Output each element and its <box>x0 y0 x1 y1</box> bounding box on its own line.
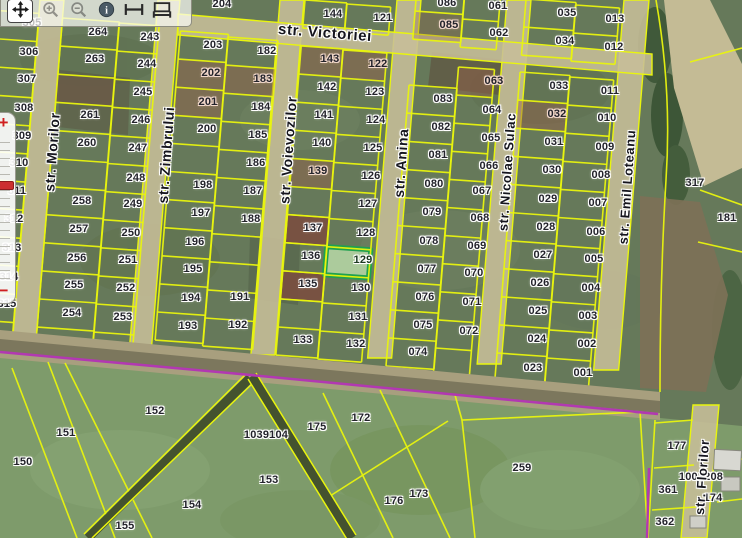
parcel-label-012[interactable]: 012 <box>605 41 624 53</box>
parcel-label-247[interactable]: 247 <box>129 142 148 154</box>
parcel-label-139[interactable]: 139 <box>309 165 328 177</box>
parcel-label-248[interactable]: 248 <box>127 172 146 184</box>
parcel-label-153[interactable]: 153 <box>260 474 279 486</box>
parcel-label-028[interactable]: 028 <box>537 221 556 233</box>
parcel-label-076[interactable]: 076 <box>416 291 435 303</box>
parcel-label-191[interactable]: 191 <box>231 291 250 303</box>
zoom-out-icon <box>70 1 87 21</box>
parcel-label-154[interactable]: 154 <box>183 499 202 511</box>
parcel-label-137[interactable]: 137 <box>304 222 323 234</box>
parcel-label-085[interactable]: 085 <box>440 19 459 31</box>
parcel-label-080[interactable]: 080 <box>425 178 444 190</box>
parcel-label-124[interactable]: 124 <box>367 114 386 126</box>
parcel-label-002[interactable]: 002 <box>578 338 597 350</box>
parcel-label-184[interactable]: 184 <box>252 101 271 113</box>
measure-distance-icon <box>124 1 144 21</box>
parcel-label-152[interactable]: 152 <box>146 405 165 417</box>
parcel-label-121[interactable]: 121 <box>374 12 393 24</box>
parcel-label-261[interactable]: 261 <box>81 109 100 121</box>
parcel-label-203[interactable]: 203 <box>204 39 223 51</box>
parcel-label-127[interactable]: 127 <box>359 198 378 210</box>
parcel-label-005[interactable]: 005 <box>585 253 604 265</box>
parcel-label-082[interactable]: 082 <box>432 121 451 133</box>
parcel-label-362[interactable]: 362 <box>656 516 675 528</box>
parcel-label-244[interactable]: 244 <box>138 58 157 70</box>
parcel-label-306[interactable]: 306 <box>20 46 39 58</box>
parcel-label-081[interactable]: 081 <box>429 149 448 161</box>
parcel-label-075[interactable]: 075 <box>414 319 433 331</box>
map-labels-layer: 3053063073083093103113123133143152642632… <box>0 0 742 538</box>
svg-text:i: i <box>105 5 108 16</box>
parcel-label-135[interactable]: 135 <box>299 278 318 290</box>
parcel-label-033[interactable]: 033 <box>550 80 569 92</box>
parcel-label-061[interactable]: 061 <box>489 0 508 12</box>
parcel-label-259[interactable]: 259 <box>513 462 532 474</box>
parcel-label-077[interactable]: 077 <box>418 263 437 275</box>
parcel-label-010[interactable]: 010 <box>598 112 617 124</box>
parcel-label-181[interactable]: 181 <box>718 212 737 224</box>
zoom-slider-track[interactable] <box>0 135 10 281</box>
parcel-label-175[interactable]: 175 <box>308 421 327 433</box>
parcel-label-032[interactable]: 032 <box>548 108 567 120</box>
parcel-label-129[interactable]: 129 <box>354 254 373 266</box>
parcel-label-253[interactable]: 253 <box>114 311 133 323</box>
parcel-label-197[interactable]: 197 <box>192 207 211 219</box>
parcel-label-079[interactable]: 079 <box>423 206 442 218</box>
parcel-label-186[interactable]: 186 <box>247 157 266 169</box>
parcel-label-027[interactable]: 027 <box>534 249 553 261</box>
parcel-label-249[interactable]: 249 <box>124 198 143 210</box>
parcel-label-176[interactable]: 176 <box>385 495 404 507</box>
parcel-label-083[interactable]: 083 <box>434 93 453 105</box>
identify-info-tool-button[interactable]: i <box>95 0 117 22</box>
parcel-label-009[interactable]: 009 <box>596 141 615 153</box>
parcel-label-204[interactable]: 204 <box>213 0 232 10</box>
parcel-label-200[interactable]: 200 <box>198 123 217 135</box>
parcel-label-140[interactable]: 140 <box>313 137 332 149</box>
parcel-label-068[interactable]: 068 <box>471 212 490 224</box>
parcel-label-307[interactable]: 307 <box>18 73 37 85</box>
parcel-label-128[interactable]: 128 <box>357 227 376 239</box>
street-label: str. Nicolae Sulac <box>495 112 518 231</box>
parcel-label-193[interactable]: 193 <box>179 320 198 332</box>
parcel-label-008[interactable]: 008 <box>592 169 611 181</box>
parcel-label-255[interactable]: 255 <box>65 279 84 291</box>
parcel-label-029[interactable]: 029 <box>539 193 558 205</box>
parcel-label-196[interactable]: 196 <box>186 236 205 248</box>
parcel-label-007[interactable]: 007 <box>589 197 608 209</box>
parcel-label-177[interactable]: 177 <box>668 440 687 452</box>
parcel-label-257[interactable]: 257 <box>70 223 89 235</box>
measure-distance-tool-button[interactable] <box>123 0 145 22</box>
measure-area-icon <box>152 1 172 21</box>
parcel-label-192[interactable]: 192 <box>229 319 248 331</box>
parcel-label-003[interactable]: 003 <box>579 310 598 322</box>
parcel-label-013[interactable]: 013 <box>606 13 625 25</box>
zoom-slider[interactable]: + − <box>0 112 16 304</box>
parcel-label-078[interactable]: 078 <box>420 235 439 247</box>
parcel-label-125[interactable]: 125 <box>364 142 383 154</box>
parcel-label-185[interactable]: 185 <box>249 129 268 141</box>
street-label: str. Anina <box>391 128 412 198</box>
parcel-label-011[interactable]: 011 <box>601 85 619 97</box>
parcel-label-142[interactable]: 142 <box>318 81 337 93</box>
parcel-label-067[interactable]: 067 <box>473 185 492 197</box>
parcel-label-150[interactable]: 150 <box>14 456 33 468</box>
zoom-in-button[interactable]: + <box>0 113 8 135</box>
parcel-label-130[interactable]: 130 <box>352 282 371 294</box>
parcel-label-144[interactable]: 144 <box>324 8 343 20</box>
parcel-label-030[interactable]: 030 <box>543 164 562 176</box>
parcel-label-194[interactable]: 194 <box>182 292 201 304</box>
parcel-label-361[interactable]: 361 <box>659 484 678 496</box>
parcel-label-034[interactable]: 034 <box>556 35 575 47</box>
parcel-label-062[interactable]: 062 <box>490 27 509 39</box>
parcel-label-256[interactable]: 256 <box>68 252 87 264</box>
parcel-label-250[interactable]: 250 <box>122 227 141 239</box>
parcel-label-071[interactable]: 071 <box>463 296 482 308</box>
parcel-label-072[interactable]: 072 <box>460 325 479 337</box>
street-label: str. Victoriei <box>277 21 372 45</box>
parcel-label-126[interactable]: 126 <box>362 170 381 182</box>
parcel-label-001[interactable]: 001 <box>574 367 593 379</box>
parcel-label-069[interactable]: 069 <box>468 240 487 252</box>
parcel-label-004[interactable]: 004 <box>582 282 601 294</box>
parcel-label-131[interactable]: 131 <box>349 311 368 323</box>
parcel-label-254[interactable]: 254 <box>63 307 82 319</box>
parcel-label-263[interactable]: 263 <box>86 53 105 65</box>
map-viewport[interactable]: 3053063073083093103113123133143152642632… <box>0 0 742 538</box>
parcel-label-198[interactable]: 198 <box>194 179 213 191</box>
identify-icon: i <box>98 1 115 21</box>
pan-icon <box>12 1 29 21</box>
zoom-slider-handle[interactable] <box>0 181 14 190</box>
parcel-label-260[interactable]: 260 <box>78 137 97 149</box>
parcel-label-133[interactable]: 133 <box>294 334 313 346</box>
zoom-out-tool-button[interactable] <box>67 0 89 22</box>
parcel-label-143[interactable]: 143 <box>321 53 340 65</box>
parcel-label-243[interactable]: 243 <box>141 31 160 43</box>
parcel-label-123[interactable]: 123 <box>366 86 385 98</box>
parcel-label-258[interactable]: 258 <box>73 195 92 207</box>
parcel-label-251[interactable]: 251 <box>119 254 138 266</box>
parcel-label-182[interactable]: 182 <box>258 45 277 57</box>
parcel-label-173[interactable]: 173 <box>410 488 429 500</box>
zoom-in-tool-button[interactable] <box>39 0 61 22</box>
parcel-label-151[interactable]: 151 <box>57 427 76 439</box>
parcel-label-245[interactable]: 245 <box>134 86 153 98</box>
parcel-label-308[interactable]: 308 <box>15 102 34 114</box>
parcel-label-086[interactable]: 086 <box>438 0 457 9</box>
parcel-label-024[interactable]: 024 <box>528 333 547 345</box>
parcel-label-155[interactable]: 155 <box>116 520 135 532</box>
parcel-label-136[interactable]: 136 <box>302 250 321 262</box>
parcel-label-063[interactable]: 063 <box>485 75 504 87</box>
parcel-label-074[interactable]: 074 <box>409 346 428 358</box>
parcel-label-065[interactable]: 065 <box>482 132 501 144</box>
parcel-label-202[interactable]: 202 <box>202 67 221 79</box>
zoom-out-button[interactable]: − <box>0 281 8 303</box>
street-label: str. Morilor <box>41 112 63 192</box>
parcel-label-026[interactable]: 026 <box>531 277 550 289</box>
parcel-label-172[interactable]: 172 <box>352 412 371 424</box>
parcel-label-064[interactable]: 064 <box>483 104 502 116</box>
parcel-label-132[interactable]: 132 <box>347 338 366 350</box>
parcel-label-317[interactable]: 317 <box>686 177 705 189</box>
street-label: str. Zimbrului <box>155 106 178 204</box>
street-label: str. Voievozilor <box>276 95 300 204</box>
map-toolbar: i <box>0 0 192 27</box>
parcel-label-188[interactable]: 188 <box>242 213 261 225</box>
parcel-label-035[interactable]: 035 <box>558 7 577 19</box>
measure-area-tool-button[interactable] <box>151 0 173 22</box>
parcel-label-031[interactable]: 031 <box>545 136 564 148</box>
street-label: str. Emil Loteanu <box>616 129 639 245</box>
parcel-label-252[interactable]: 252 <box>117 282 136 294</box>
parcel-label-122[interactable]: 122 <box>369 58 388 70</box>
parcel-label-006[interactable]: 006 <box>587 226 606 238</box>
parcel-label-066[interactable]: 066 <box>480 160 499 172</box>
cadastral-number-1039104[interactable]: 1039104 <box>244 429 288 441</box>
parcel-label-195[interactable]: 195 <box>184 263 203 275</box>
parcel-label-025[interactable]: 025 <box>529 305 548 317</box>
parcel-label-023[interactable]: 023 <box>524 362 543 374</box>
parcel-label-201[interactable]: 201 <box>199 96 218 108</box>
parcel-label-264[interactable]: 264 <box>89 26 108 38</box>
parcel-label-070[interactable]: 070 <box>465 267 484 279</box>
parcel-label-141[interactable]: 141 <box>315 109 334 121</box>
zoom-in-icon <box>42 1 59 21</box>
parcel-label-183[interactable]: 183 <box>254 73 273 85</box>
parcel-label-246[interactable]: 246 <box>132 114 151 126</box>
pan-tool-button[interactable] <box>7 0 33 23</box>
parcel-label-187[interactable]: 187 <box>244 185 263 197</box>
